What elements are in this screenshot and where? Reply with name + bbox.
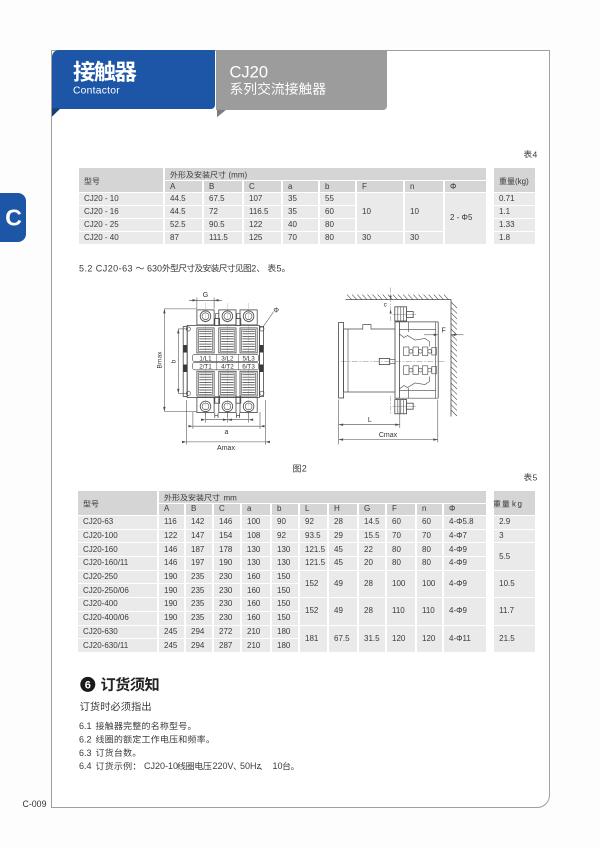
svg-text:6: 6: [85, 679, 91, 691]
svg-text:Contactor: Contactor: [73, 86, 120, 97]
svg-text:4: 4: [533, 149, 538, 159]
svg-text:C: C: [5, 205, 22, 231]
svg-text:2: 2: [251, 263, 256, 273]
svg-text:CJ20: CJ20: [230, 64, 269, 82]
svg-text:6.2: 6.2: [79, 734, 92, 744]
svg-text:6.1: 6.1: [79, 721, 92, 731]
svg-text:(mm): (mm): [229, 171, 248, 180]
svg-text:5.2 CJ20-63: 5.2 CJ20-63: [79, 263, 133, 273]
svg-text:5: 5: [277, 263, 282, 273]
svg-text:630: 630: [147, 263, 162, 273]
svg-text:10: 10: [273, 761, 283, 771]
svg-text:kg: kg: [512, 500, 523, 509]
svg-text:C-009: C-009: [23, 799, 47, 809]
svg-text:50Hz: 50Hz: [240, 761, 262, 771]
svg-text:CJ20-10: CJ20-10: [144, 761, 178, 771]
svg-text:6.3: 6.3: [79, 748, 92, 758]
svg-text:(kg): (kg): [515, 177, 529, 186]
svg-text:220V: 220V: [213, 761, 234, 771]
svg-text:2: 2: [302, 464, 307, 474]
svg-text:6.4: 6.4: [79, 761, 92, 771]
svg-text:5: 5: [533, 472, 538, 482]
svg-text:mm: mm: [224, 493, 238, 502]
